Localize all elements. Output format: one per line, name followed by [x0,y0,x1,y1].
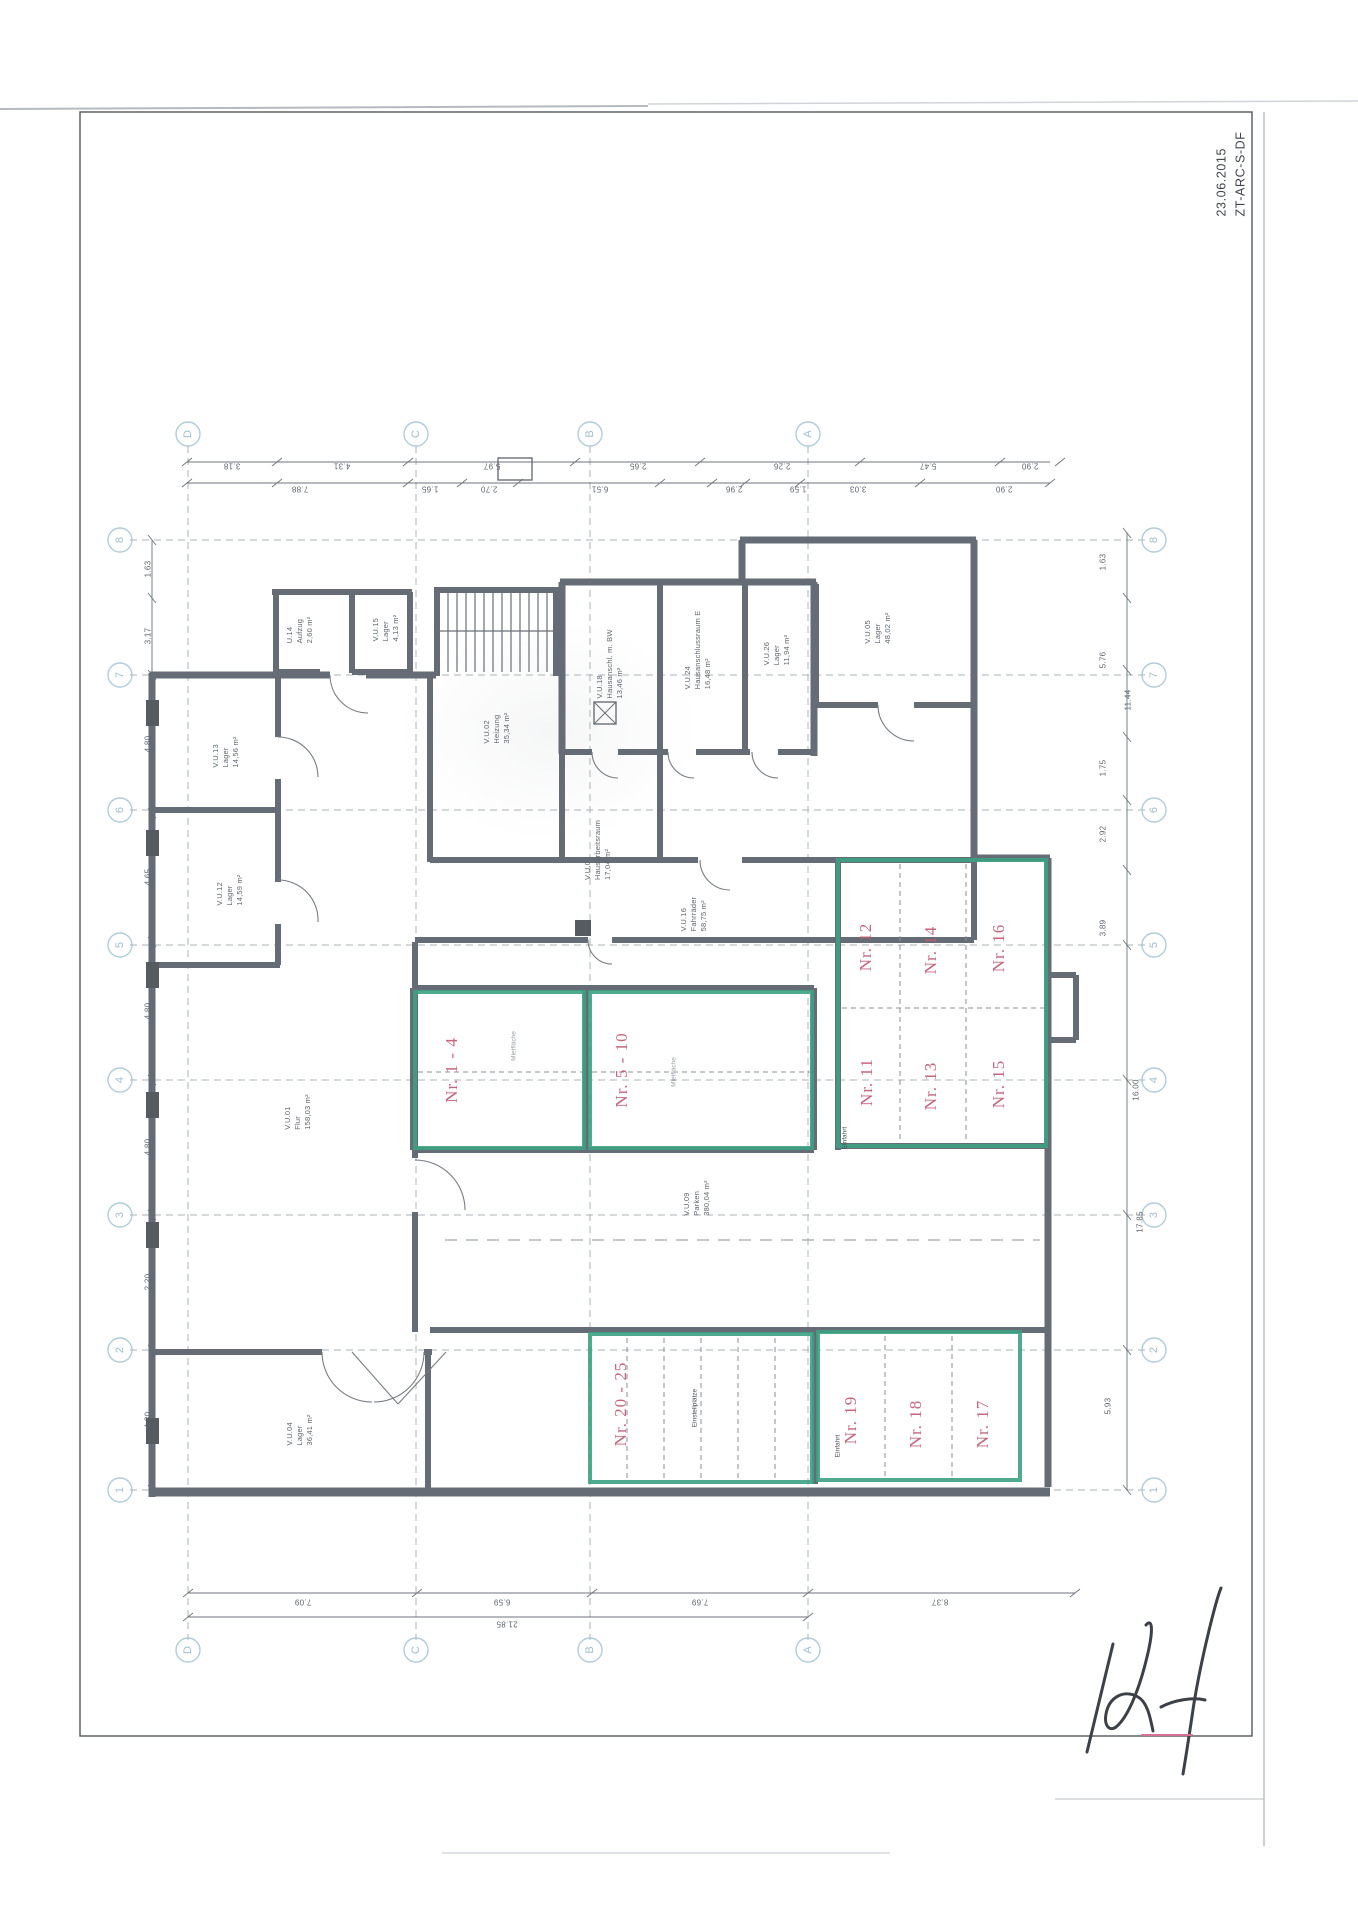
unit-number-label: Nr. 20 - 25 [611,1362,631,1447]
dimension-label: 2.26 [774,462,791,471]
unit-number-label: Nr. 12 [856,923,876,972]
dimension-label: 16.00 [1132,1079,1141,1101]
unit-number-label: Nr. 16 [989,924,1009,973]
note-label: Mietfläche [511,1031,518,1061]
unit-number-label: Nr. 19 [841,1396,861,1445]
dimension-label: 1.75 [1099,760,1108,777]
unit-number-label: Nr. 18 [906,1400,926,1449]
grid-column-label: A [802,430,814,437]
dimension-label: 2.20 [144,1274,153,1291]
dimension-label: 4.80 [144,1139,153,1156]
dimension-label: 6.51 [592,485,609,494]
grid-row-label: 8 [114,537,126,543]
note-label: Einfahrt [835,1435,842,1457]
grid-column-label: D [182,430,194,438]
room-label: V.U.13Lager14,56 m² [211,736,241,767]
room-label: V.U.05Lager48,02 m² [863,612,893,643]
grid-column-label: C [410,1646,422,1654]
room-label: U.14Aufzug2,60 m² [285,617,315,644]
dimension-label: 1.63 [1099,554,1108,571]
dimension-label: 2.65 [630,462,647,471]
dimension-label: 4.80 [144,1412,153,1429]
dimension-label: 7.09 [295,1598,312,1607]
grid-column-label: B [584,430,596,437]
dimension-label: 17.85 [1136,1211,1145,1233]
dimension-label: 2.96 [726,485,743,494]
room-label: V.U.04Lager36,41 m² [285,1414,315,1445]
unit-number-label: Nr. 1 - 4 [442,1037,462,1103]
dimension-label: 3.03 [850,485,867,494]
note-label: Mietfläche [671,1057,678,1087]
dimension-label: 5.76 [1099,652,1108,669]
grid-column-label: C [410,430,422,438]
dimension-label: 3.89 [1099,920,1108,937]
grid-column-label: D [182,1646,194,1654]
dimension-label: 4.80 [144,736,153,753]
room-label: V.U.12Lager14,59 m² [215,874,245,905]
dimension-label: 7.88 [292,485,309,494]
dimension-label: 7.69 [692,1598,709,1607]
dimension-label: 3.18 [224,462,241,471]
dimension-label: 5.93 [1104,1398,1113,1415]
dimension-label: 1.59 [790,485,807,494]
dimension-label: 4.31 [334,462,351,471]
grid-row-label: 4 [1148,1077,1160,1083]
dimension-label: 1.65 [422,485,439,494]
room-label: V.U.26Lager11,94 m² [762,635,792,666]
room-label: V.U.16Fahrräder58,75 m² [679,897,709,932]
unit-number-label: Nr. 17 [973,1400,993,1449]
dimension-label: 2.92 [1099,826,1108,843]
grid-column-label: B [584,1646,596,1653]
dimension-label: 4.80 [144,1003,153,1020]
room-label: V.U.24Hausanschlussraum E16,48 m² [683,611,713,690]
unit-number-label: Nr. 5 - 10 [612,1032,632,1107]
grid-row-label: 2 [114,1347,126,1353]
grid-row-label: 1 [1148,1487,1160,1493]
grid-column-label: A [802,1646,814,1653]
grid-row-label: 3 [1148,1212,1160,1218]
grid-row-label: 5 [1148,942,1160,948]
grid-row-label: 6 [114,807,126,813]
dimension-label: 6.59 [494,1598,511,1607]
dimension-label: 11.44 [1124,690,1133,711]
unit-number-label: Nr. 13 [921,1062,941,1111]
note-label: Einstellplätze [692,1389,699,1427]
grid-row-label: 2 [1148,1347,1160,1353]
dimension-label: 5.47 [920,462,937,471]
grid-row-label: 7 [1148,672,1160,678]
dimension-label: 3.17 [144,628,153,645]
dimension-label: 4.65 [144,869,153,886]
room-label: V.U.07Hausarbeitsraum17,04 m² [583,820,613,880]
room-label: V.U.01Flur158,03 m² [283,1094,313,1130]
room-label: V.U.18Hausanschl. m. BW13,46 m² [595,629,625,698]
dimension-label: 8.37 [932,1598,949,1607]
grid-row-label: 7 [114,672,126,678]
unit-number-label: Nr. 11 [857,1058,877,1106]
unit-number-label: Nr. 14 [921,926,941,975]
grid-row-label: 4 [114,1077,126,1083]
dimension-label: 1.63 [144,561,153,578]
grid-row-label: 1 [114,1487,126,1493]
dimension-label: 2.70 [481,485,498,494]
grid-row-label: 3 [114,1212,126,1218]
unit-number-label: Nr. 15 [989,1060,1009,1109]
grid-row-label: 6 [1148,807,1160,813]
plan-text-layer: Nr. 1 - 4Nr. 5 - 10Nr. 12Nr. 14Nr. 16Nr.… [0,0,1358,1920]
room-label: V.U.02Heizung35,34 m² [482,712,512,743]
dimension-label: 2.90 [1022,462,1039,471]
note-label: Einfahrt [842,1127,849,1149]
grid-row-label: 5 [114,942,126,948]
dimension-label: 2.90 [996,485,1013,494]
room-label: V.U.09Parken380,04 m² [682,1180,712,1216]
grid-row-label: 8 [1148,537,1160,543]
dimension-label: 5.97 [484,462,501,471]
dimension-label: 21.85 [496,1620,518,1629]
room-label: V.U.15Lager4,13 m² [371,615,401,642]
scanned-floor-plan-page: Nr. 1 - 4Nr. 5 - 10Nr. 12Nr. 14Nr. 16Nr.… [0,0,1358,1920]
